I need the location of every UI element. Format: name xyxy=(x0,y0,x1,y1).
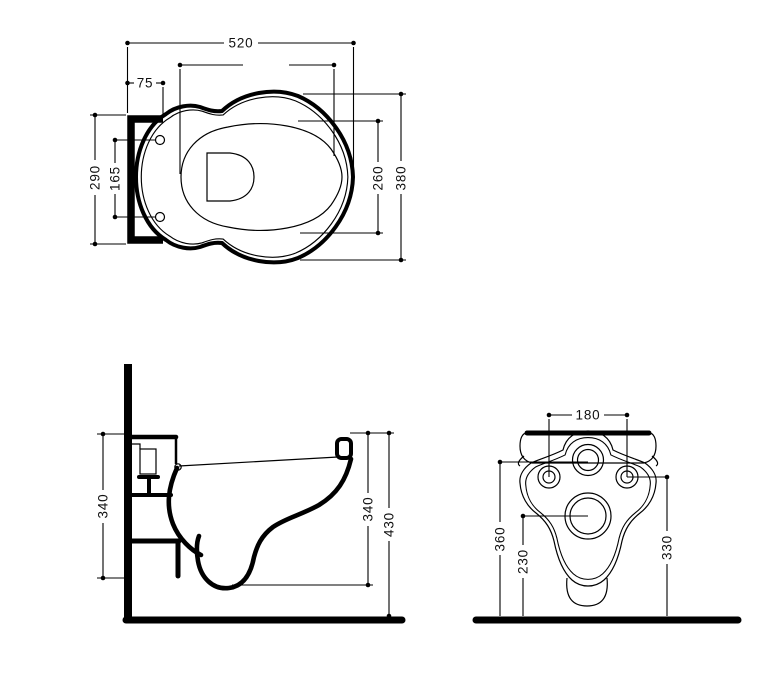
fixing-hole-top-plan xyxy=(156,136,165,145)
dim-fixing-hole-spacing: 180 xyxy=(547,408,630,478)
dim-mount-height: 340 xyxy=(96,432,125,581)
bowl-front-outline-side xyxy=(197,459,351,588)
body-outline-front xyxy=(520,431,656,586)
dim-label-overall-length: 520 xyxy=(229,36,254,51)
fixing-hardware-side xyxy=(132,437,179,576)
rim-nose-side xyxy=(337,439,351,458)
dim-label-outlet-height: 230 xyxy=(516,549,531,574)
dim-label-hole-offset: 75 xyxy=(137,76,154,91)
dim-label-bowl-inner-width: 260 xyxy=(371,166,386,191)
tank-wing-right xyxy=(652,456,658,466)
dim-fixing-hole-height: 330 xyxy=(627,475,675,616)
toilet-drawing-svg: 520 75 xyxy=(0,0,770,677)
inlet-inner-front xyxy=(578,450,599,471)
dim-label-total-height: 430 xyxy=(382,512,397,537)
bowl-profile-side xyxy=(169,438,351,588)
dim-overall-length: 520 xyxy=(125,36,356,176)
dim-label-fixing-hole-height: 330 xyxy=(660,535,675,560)
seat-line-side xyxy=(179,457,338,466)
dim-total-height: 430 xyxy=(350,431,397,619)
water-spot-plan xyxy=(207,153,254,201)
dim-label-bowl-outer-width: 380 xyxy=(394,166,409,191)
bowl-opening-plan xyxy=(181,124,342,231)
dim-unlabeled-opening-length xyxy=(178,63,337,174)
body-inner-line-front xyxy=(526,438,651,580)
dim-label-hole-spacing-plan: 165 xyxy=(108,166,123,191)
front-view: 180 360 230 330 xyxy=(476,408,738,621)
dim-outlet-height: 230 xyxy=(516,514,589,616)
plan-view: 520 75 xyxy=(88,36,409,263)
side-view: 340 340 430 xyxy=(96,368,403,620)
dim-label-inlet-height: 360 xyxy=(493,527,508,552)
dim-label-mount-depth: 290 xyxy=(88,165,103,190)
technical-drawing-sheet: 520 75 xyxy=(0,0,770,677)
dim-label-bowl-height: 340 xyxy=(361,497,376,522)
dim-hole-offset: 75 xyxy=(125,76,165,115)
tank-wing-left xyxy=(518,456,524,466)
dim-label-fixing-hole-spacing: 180 xyxy=(576,408,601,423)
fixing-hole-bottom-plan xyxy=(156,213,165,222)
dim-label-mount-height: 340 xyxy=(96,494,111,519)
